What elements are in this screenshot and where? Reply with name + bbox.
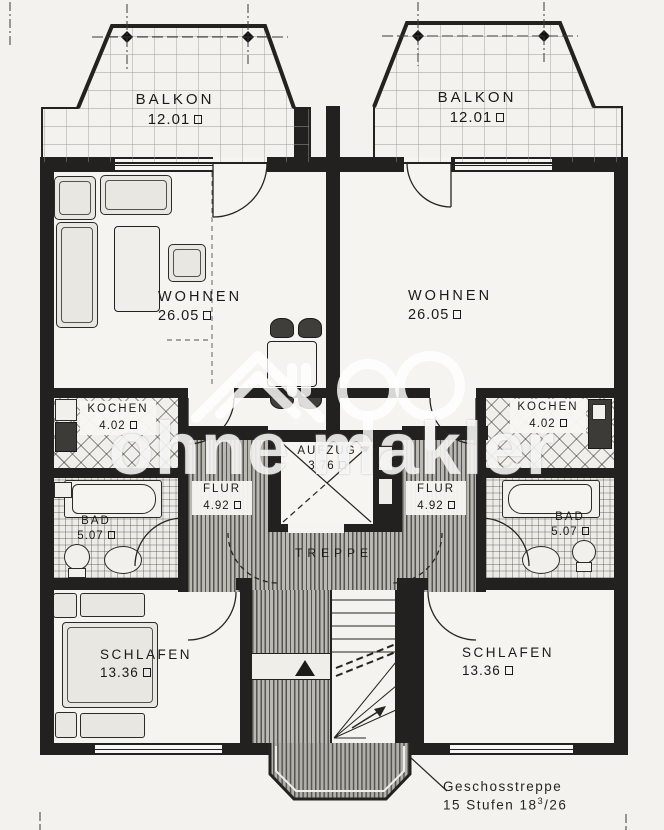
dining-chair: [298, 318, 322, 338]
stair-annotation: Geschosstreppe 15 Stufen 183/26: [443, 779, 567, 814]
kitchen-counter-left: [55, 399, 77, 421]
room-area: 4.92: [406, 498, 466, 515]
dresser-bottom: [80, 713, 145, 738]
room-area-value: 4.92: [417, 500, 443, 512]
annotation-leader: [410, 757, 447, 791]
room-label-schlafen-right: SCHLAFEN 13.36: [462, 644, 568, 679]
dining-table: [267, 341, 317, 387]
balcony-door-opening-right: [404, 157, 451, 172]
sofa-three-seat: [56, 222, 98, 328]
room-area-value: 4.92: [203, 500, 229, 512]
wall-bottom: [573, 743, 628, 755]
stair-tread-text: /26: [544, 797, 567, 812]
sqm-square-icon: [143, 668, 151, 677]
wall-bottom: [222, 743, 270, 755]
shaft-duct: [377, 477, 394, 506]
room-label-bad-left: BAD 5.07: [66, 514, 126, 544]
room-area-value: 4.02: [529, 418, 555, 430]
armchair-seat: [173, 249, 201, 277]
wall-hall-left: [178, 388, 188, 592]
wall-bottom: [410, 743, 450, 755]
room-area-value: 13.36: [100, 665, 139, 680]
room-name: SCHLAFEN: [100, 646, 206, 664]
sqm-square-icon: [496, 113, 504, 122]
wall-basin-left: [54, 482, 72, 498]
sqm-square-icon: [203, 311, 211, 320]
wall-wohnen-right: [476, 388, 616, 398]
room-area-value: 4.02: [99, 420, 125, 432]
shaft-duct: [377, 445, 394, 472]
room-name: BAD: [540, 510, 600, 525]
wall-stair-right: [397, 578, 424, 743]
stair-steps-text: 15 Stufen 18: [443, 797, 538, 812]
room-name: FLUR: [192, 481, 252, 498]
armchair: [168, 244, 206, 282]
sink-left: [104, 546, 142, 574]
room-area-value: 5.07: [77, 530, 103, 542]
window-glazing: [95, 749, 222, 750]
toilet-left-tank: [68, 568, 86, 578]
window-top-right: [455, 157, 552, 172]
room-name: FLUR: [406, 481, 466, 498]
wall-bedroom-left: [52, 578, 188, 590]
room-area: 26.05: [408, 306, 518, 325]
wall-core-top-left: [178, 426, 268, 440]
wall-bottom: [40, 743, 95, 755]
room-name: KOCHEN: [510, 399, 586, 416]
room-area: 13.36: [100, 664, 206, 682]
window-glazing: [450, 749, 573, 750]
landing-niche: [252, 653, 330, 680]
wall-kitchen-right: [476, 468, 616, 478]
room-area-value: 12.01: [148, 111, 191, 128]
dresser-top: [80, 593, 145, 617]
room-area-value: 5.07: [551, 526, 577, 538]
coffee-table: [114, 226, 160, 312]
wall-bedroom-right: [476, 578, 616, 590]
wall-wohnen-right: [340, 388, 430, 398]
room-label-aufzug: AUFZUG 3.76: [284, 444, 370, 474]
window-glazing: [455, 165, 552, 166]
staircase-area: [330, 590, 397, 743]
room-label-wohnen-right: WOHNEN 26.05: [408, 287, 518, 325]
room-label-schlafen-left: SCHLAFEN 13.36: [100, 646, 206, 681]
room-name: BAD: [66, 514, 126, 529]
armchair-corner: [54, 176, 96, 220]
sqm-square-icon: [234, 501, 241, 509]
wall-left: [40, 157, 54, 755]
sqm-square-icon: [505, 666, 513, 675]
wall-core-top-right: [402, 426, 488, 440]
stair-annotation-line1: Geschosstreppe: [443, 779, 567, 796]
toilet-left: [64, 544, 90, 570]
room-name: BALKON: [115, 90, 235, 110]
sqm-square-icon: [448, 501, 455, 509]
room-name: KOCHEN: [80, 401, 156, 418]
elevator-door: [288, 524, 344, 533]
room-label-flur-right: FLUR 4.92: [406, 481, 466, 515]
sqm-square-icon: [453, 310, 461, 319]
kitchen-counter-right: [592, 404, 606, 420]
sofa-seat: [105, 180, 167, 210]
room-area: 13.36: [462, 662, 568, 680]
stair-bay: [270, 743, 410, 799]
stair-annotation-line2: 15 Stufen 183/26: [443, 796, 567, 814]
room-area: 5.07: [66, 529, 126, 544]
sqm-square-icon: [108, 531, 115, 539]
window-bedroom-right: [450, 743, 573, 755]
balcony-pier: [326, 106, 340, 158]
balcony-door-opening-left: [213, 157, 267, 172]
balcony-pier: [294, 108, 310, 158]
dining-chair: [270, 318, 294, 338]
room-label-flur-left: FLUR 4.92: [192, 481, 252, 515]
room-name: WOHNEN: [158, 288, 268, 307]
wall-bedroom-left-side: [240, 578, 252, 743]
room-label-wohnen-left: WOHNEN 26.05: [158, 288, 268, 326]
wall-right: [614, 157, 628, 755]
room-area: 12.01: [115, 110, 235, 130]
room-label-treppe: TREPPE: [290, 546, 378, 562]
sofa-two-seat: [100, 175, 172, 215]
nightstand: [53, 593, 77, 618]
room-name: AUFZUG: [284, 444, 370, 459]
room-label-bad-right: BAD 5.07: [540, 510, 600, 540]
room-name: TREPPE: [290, 546, 378, 562]
toilet-right: [572, 540, 596, 564]
sink-right: [522, 546, 560, 574]
bathtub-left-basin: [72, 484, 156, 514]
sofa-seat: [61, 227, 93, 323]
floor-plan: BALKON 12.01 BALKON 12.01 WOHNEN 26.05 W…: [0, 0, 664, 830]
toilet-right-tank: [576, 562, 592, 572]
room-label-balkon-right: BALKON 12.01: [417, 88, 537, 127]
wall-kitchen-left: [52, 468, 188, 478]
sqm-square-icon: [339, 461, 346, 469]
room-area: 4.92: [192, 498, 252, 515]
kitchen-sink-left: [55, 422, 77, 452]
room-area: 26.05: [158, 307, 268, 326]
room-area-value: 26.05: [408, 307, 449, 323]
room-area-value: 26.05: [158, 308, 199, 324]
sqm-square-icon: [560, 419, 567, 427]
room-name: WOHNEN: [408, 287, 518, 306]
nightstand: [55, 712, 77, 738]
room-area-value: 13.36: [462, 663, 501, 678]
room-area: 4.02: [510, 416, 586, 433]
room-area-value: 3.76: [308, 460, 334, 472]
armchair-seat: [59, 181, 91, 215]
wall-wohnen-left: [52, 388, 178, 398]
room-name: SCHLAFEN: [462, 644, 568, 662]
room-area: 12.01: [417, 108, 537, 128]
wall-wohnen-left: [234, 388, 326, 398]
room-area: 5.07: [540, 525, 600, 540]
room-label-kochen-right: KOCHEN 4.02: [510, 399, 586, 433]
wall-hall-right: [476, 388, 486, 592]
window-top-left: [115, 157, 213, 172]
party-wall: [326, 170, 340, 430]
sqm-square-icon: [582, 527, 589, 535]
room-area: 4.02: [80, 418, 156, 435]
room-area-value: 12.01: [450, 109, 493, 126]
room-name: BALKON: [417, 88, 537, 108]
sqm-square-icon: [130, 421, 137, 429]
room-label-balkon-left: BALKON 12.01: [115, 90, 235, 129]
room-label-kochen-left: KOCHEN 4.02: [80, 401, 156, 435]
room-area: 3.76: [284, 459, 370, 474]
sqm-square-icon: [194, 115, 202, 124]
window-bedroom-left: [95, 743, 222, 755]
window-glazing: [115, 165, 213, 166]
